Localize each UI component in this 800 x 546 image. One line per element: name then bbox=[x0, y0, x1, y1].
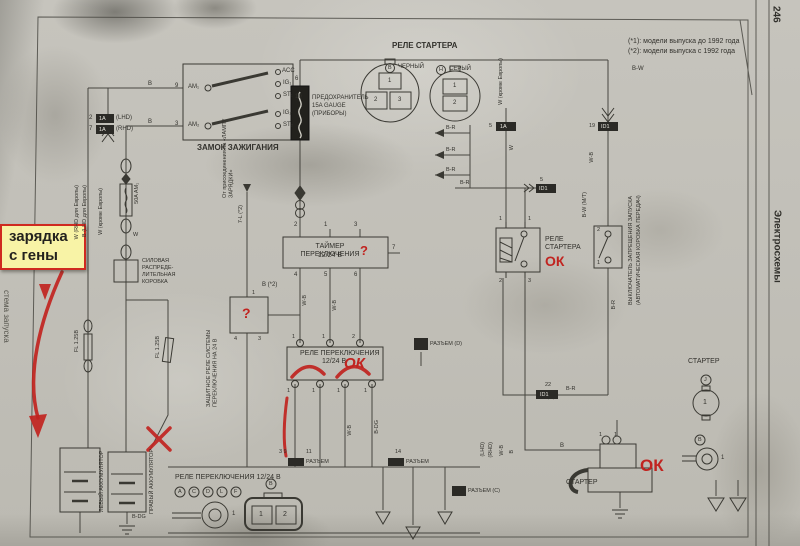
strelay-p4: 3 bbox=[528, 278, 531, 284]
scanned-wiring-diagram-page: 246 Электросхемы стема запуска (*1): мод… bbox=[0, 0, 800, 546]
conn-19-id1: ID1 bbox=[601, 124, 610, 130]
swrelay-t2: 1 bbox=[322, 334, 325, 340]
ignition-title: ЗАМОК ЗАЖИГАНИЯ bbox=[197, 143, 279, 152]
swrelay-b1: 1 bbox=[287, 388, 290, 394]
panel-conn-pin1: 1 bbox=[259, 511, 263, 519]
panel-pin-11: 11 bbox=[306, 449, 312, 455]
relay-conn-side-note: W (кроме Европы) bbox=[498, 58, 504, 105]
wire-wb-5: W-B bbox=[499, 445, 505, 456]
wire-br-3: B-R bbox=[446, 167, 455, 173]
ignition-acc: ACC bbox=[282, 68, 295, 75]
starter-right-b: B bbox=[698, 437, 702, 443]
relay-conn-title: РЕЛЕ СТАРТЕРА bbox=[392, 41, 457, 50]
nswitch-name2: (АВТОМАТИЧЕСКАЯ КОРОБКА ПЕРЕДАЧ) bbox=[636, 180, 642, 305]
conn-5-1a-num: 5 bbox=[489, 123, 492, 129]
panel-l: L bbox=[220, 489, 223, 495]
red-arrowhead-icon bbox=[29, 414, 47, 438]
conn-1a-label-a: 1A bbox=[99, 116, 106, 122]
wire-wb-1: W-B bbox=[589, 152, 595, 163]
ignition-pin6: 6 bbox=[295, 76, 298, 83]
guard-wire: 7-L (*2) bbox=[238, 205, 244, 223]
relay-conn-black: ЧЕРНЫЙ bbox=[398, 64, 424, 71]
wire-w: W bbox=[509, 145, 515, 150]
swrelay-name2: 12/24 В bbox=[322, 358, 346, 366]
pwrbox-l2: РАСПРЕДЕ- bbox=[142, 265, 173, 271]
wire-lhd: (LHD) bbox=[480, 442, 486, 457]
timer-pin-t1: 2 bbox=[294, 222, 297, 229]
relay-conn-black-letter: B bbox=[388, 65, 392, 71]
nswitch-wire: B-W (М/Т) bbox=[582, 192, 588, 217]
conn-1a-pin2: 2 bbox=[89, 115, 92, 122]
starter-pin2: 1 bbox=[614, 432, 617, 438]
panel-title: РЕЛЕ ПЕРЕКЛЮЧЕНИЯ 12/24 В bbox=[175, 474, 281, 482]
timer-name2: 12/24 В bbox=[290, 252, 370, 260]
relay-conn-p1: 1 bbox=[388, 78, 391, 85]
swrelay-t3: 2 bbox=[352, 334, 355, 340]
red-ok-swrelay: ОК bbox=[344, 355, 365, 372]
conn-razem-d: РАЗЪЕМ (D) bbox=[430, 341, 462, 347]
ignition-st1: ST₁ bbox=[283, 92, 293, 99]
red-check-left bbox=[292, 367, 324, 377]
nswitch-name1: ВЫКЛЮЧАТЕЛЬ ЗАПРЕЩЕНИЯ ЗАПУСКА bbox=[628, 180, 634, 305]
wire-bw: B-W bbox=[632, 66, 644, 73]
conn-19-num: 19 bbox=[589, 123, 595, 129]
timer-pin-t3: 3 bbox=[354, 222, 357, 229]
leftcol-fl2: FL 1.25B bbox=[155, 336, 161, 358]
timer-note: B (*2) bbox=[262, 282, 277, 289]
red-ok-starter: ОК bbox=[640, 456, 664, 476]
left-edge-note: стема запуска bbox=[2, 290, 11, 343]
wire-bdg: B-DG bbox=[374, 420, 380, 434]
leftcol-l2: B (LHD для Европы) bbox=[82, 185, 88, 237]
battery-left-label: ЛЕВЫЙ АККУМУЛЯТОР bbox=[99, 450, 105, 512]
relay-conn-gray: СЕРЫЙ bbox=[449, 66, 471, 73]
wire-b-2: B bbox=[509, 450, 515, 454]
wire-br-5: B-R bbox=[566, 386, 575, 392]
swrelay-b3: 1 bbox=[337, 388, 340, 394]
wire-br-2: B-R bbox=[446, 147, 455, 153]
starter-right-pin: 1 bbox=[703, 399, 707, 407]
battery-right-label: ПРАВЫЙ АККУМУЛЯТОР bbox=[149, 452, 155, 514]
wire-rhd: (RHD) bbox=[488, 442, 494, 458]
battery-wire: B-DG bbox=[132, 514, 146, 520]
red-question-timer: ? bbox=[360, 244, 368, 259]
relay-conn-q1: 1 bbox=[453, 83, 456, 90]
conn-razem-c: РАЗЪЕМ (C) bbox=[468, 488, 500, 494]
panel-pins-39: 3 9 bbox=[279, 449, 287, 455]
sticky-note-line2: с гены bbox=[9, 247, 84, 266]
conn-1a-label-b: 1A bbox=[99, 127, 106, 133]
red-stroke-mark bbox=[284, 398, 287, 456]
swrelay-b4: 1 bbox=[364, 388, 367, 394]
pwrbox-l3: ЛИТЕЛЬНАЯ bbox=[142, 272, 175, 278]
leftcol-fl1: FL 1.25B bbox=[74, 330, 80, 352]
side-title: Электросхемы bbox=[771, 210, 783, 283]
page-number: 246 bbox=[770, 6, 782, 23]
conn-22-num: 22 bbox=[545, 382, 551, 388]
starter-right-label: СТАРТЕР bbox=[688, 358, 720, 366]
conn-22-id1: ID1 bbox=[540, 392, 549, 398]
fuse-name: ПРЕДОХРАНИТЕЛЬ bbox=[312, 95, 369, 102]
nswitch-p1: 1 bbox=[597, 260, 600, 266]
sticky-note-line1: зарядка bbox=[9, 228, 84, 247]
wire-wb-3: W-B bbox=[332, 300, 338, 311]
conn-razem-2: РАЗЪЕМ bbox=[406, 459, 429, 465]
starter-right-ring: 1 bbox=[721, 455, 724, 462]
relay-conn-gray-letter: H bbox=[439, 67, 443, 73]
wire-br-1: B-R bbox=[446, 125, 455, 131]
guard-pin1: 1 bbox=[252, 290, 255, 296]
strelay-p3: 2 bbox=[499, 278, 502, 284]
timer-pin-b2: 5 bbox=[324, 272, 327, 279]
ignition-ig1: IG₁ bbox=[283, 80, 291, 87]
red-ok-strelay: ОК bbox=[545, 253, 564, 269]
pwrbox-w: W bbox=[133, 232, 138, 238]
pwrbox-l1: СИЛОВАЯ bbox=[142, 258, 169, 264]
leftcol-l1: W (RHD для Европы) bbox=[74, 185, 80, 239]
fuse-note: (ПРИБОРЫ) bbox=[312, 111, 346, 118]
starter-pin1: 1 bbox=[599, 432, 602, 438]
relay-conn-q2: 2 bbox=[453, 100, 456, 107]
guard-pin4: 4 bbox=[234, 336, 237, 342]
panel-a: A bbox=[178, 489, 182, 495]
relay-conn-p3: 3 bbox=[398, 97, 401, 104]
ignition-pin10: 10 bbox=[295, 94, 302, 101]
guard-pin3: 3 bbox=[258, 336, 261, 342]
conn-5d-id1: ID1 bbox=[539, 186, 548, 192]
panel-conn-pin2: 2 bbox=[283, 511, 287, 519]
footnote-2: (*2): модели выпуска с 1992 года bbox=[628, 48, 735, 56]
wire-wb-2: W-B bbox=[302, 295, 308, 306]
panel-c: C bbox=[192, 489, 196, 495]
timer-pin-b1: 4 bbox=[294, 272, 297, 279]
ignition-am1: AM₁ bbox=[188, 84, 199, 91]
timer-pin-t2: 1 bbox=[324, 222, 327, 229]
conn-razem-1: РАЗЪЕМ bbox=[306, 459, 329, 465]
wire-wb-4: W-B bbox=[347, 425, 353, 436]
panel-f: F bbox=[234, 489, 237, 495]
wire-br-4: B-R bbox=[460, 180, 469, 186]
starter-bottom-label: СТАРТЕР bbox=[566, 479, 598, 487]
starter-wire-b: B bbox=[560, 443, 564, 450]
swrelay-b2: 1 bbox=[312, 388, 315, 394]
panel-pin-14: 14 bbox=[395, 449, 401, 455]
fuse-rating: 15A GAUGE bbox=[312, 103, 346, 110]
wire-b2: B bbox=[148, 119, 152, 126]
panel-d: D bbox=[206, 489, 210, 495]
red-long-arrow bbox=[34, 272, 62, 418]
wire-br-6: B-R bbox=[611, 300, 617, 309]
ignition-pin3: 3 bbox=[175, 121, 178, 128]
ignition-ig2: IG₂ bbox=[283, 110, 292, 117]
guard-name: ЗАЩИТНОЕ РЕЛЕ СИСТЕМЫ ПЕРЕКЛЮЧЕНИЯ НА 24… bbox=[206, 292, 219, 407]
red-question-guard: ? bbox=[242, 305, 251, 321]
wire-b1: B bbox=[148, 81, 152, 88]
conn-1a-pin7: 7 bbox=[89, 126, 92, 133]
conn-5d-num: 5 bbox=[540, 177, 543, 183]
strelay-name1: РЕЛЕ bbox=[545, 236, 564, 244]
panel-conn-letter: B bbox=[269, 481, 273, 487]
relay-conn-p2: 2 bbox=[374, 97, 377, 104]
strelay-p2: 1 bbox=[528, 216, 531, 222]
footnote-1: (*1): модели выпуска до 1992 года bbox=[628, 38, 739, 46]
strelay-name2: СТАРТЕРА bbox=[545, 244, 581, 252]
red-small-arrow-icon bbox=[39, 284, 51, 300]
pwrbox-fuse: 50A AM₁ bbox=[134, 183, 140, 204]
panel-ring-pin: 1 bbox=[232, 511, 235, 518]
timer-pin-b3: 6 bbox=[354, 272, 357, 279]
red-x-icon bbox=[148, 428, 170, 450]
guard-from: От присоединения на «ЛАМПУ ЗАРЯДКИ» bbox=[222, 108, 235, 198]
timer-pin-r1: 7 bbox=[392, 245, 395, 252]
pwrbox-l4: КОРОБКА bbox=[142, 279, 168, 285]
swrelay-name1: РЕЛЕ ПЕРЕКЛЮЧЕНИЯ bbox=[300, 350, 380, 358]
swrelay-t1: 1 bbox=[292, 334, 295, 340]
red-annotation-layer bbox=[0, 0, 800, 546]
conn-5-1a: 1A bbox=[500, 124, 507, 130]
conn-lhd: (LHD) bbox=[116, 115, 132, 122]
starter-right-j: J bbox=[704, 377, 707, 383]
ignition-st2: ST₂ bbox=[283, 122, 293, 129]
nswitch-p2: 2 bbox=[597, 227, 600, 233]
leftcol-l3: W (кроме Европы) bbox=[98, 188, 104, 235]
ignition-am2: AM₂ bbox=[188, 122, 199, 129]
strelay-p1: 1 bbox=[499, 216, 502, 222]
ignition-pin9: 9 bbox=[175, 83, 178, 90]
conn-rhd: (RHD) bbox=[116, 126, 133, 133]
